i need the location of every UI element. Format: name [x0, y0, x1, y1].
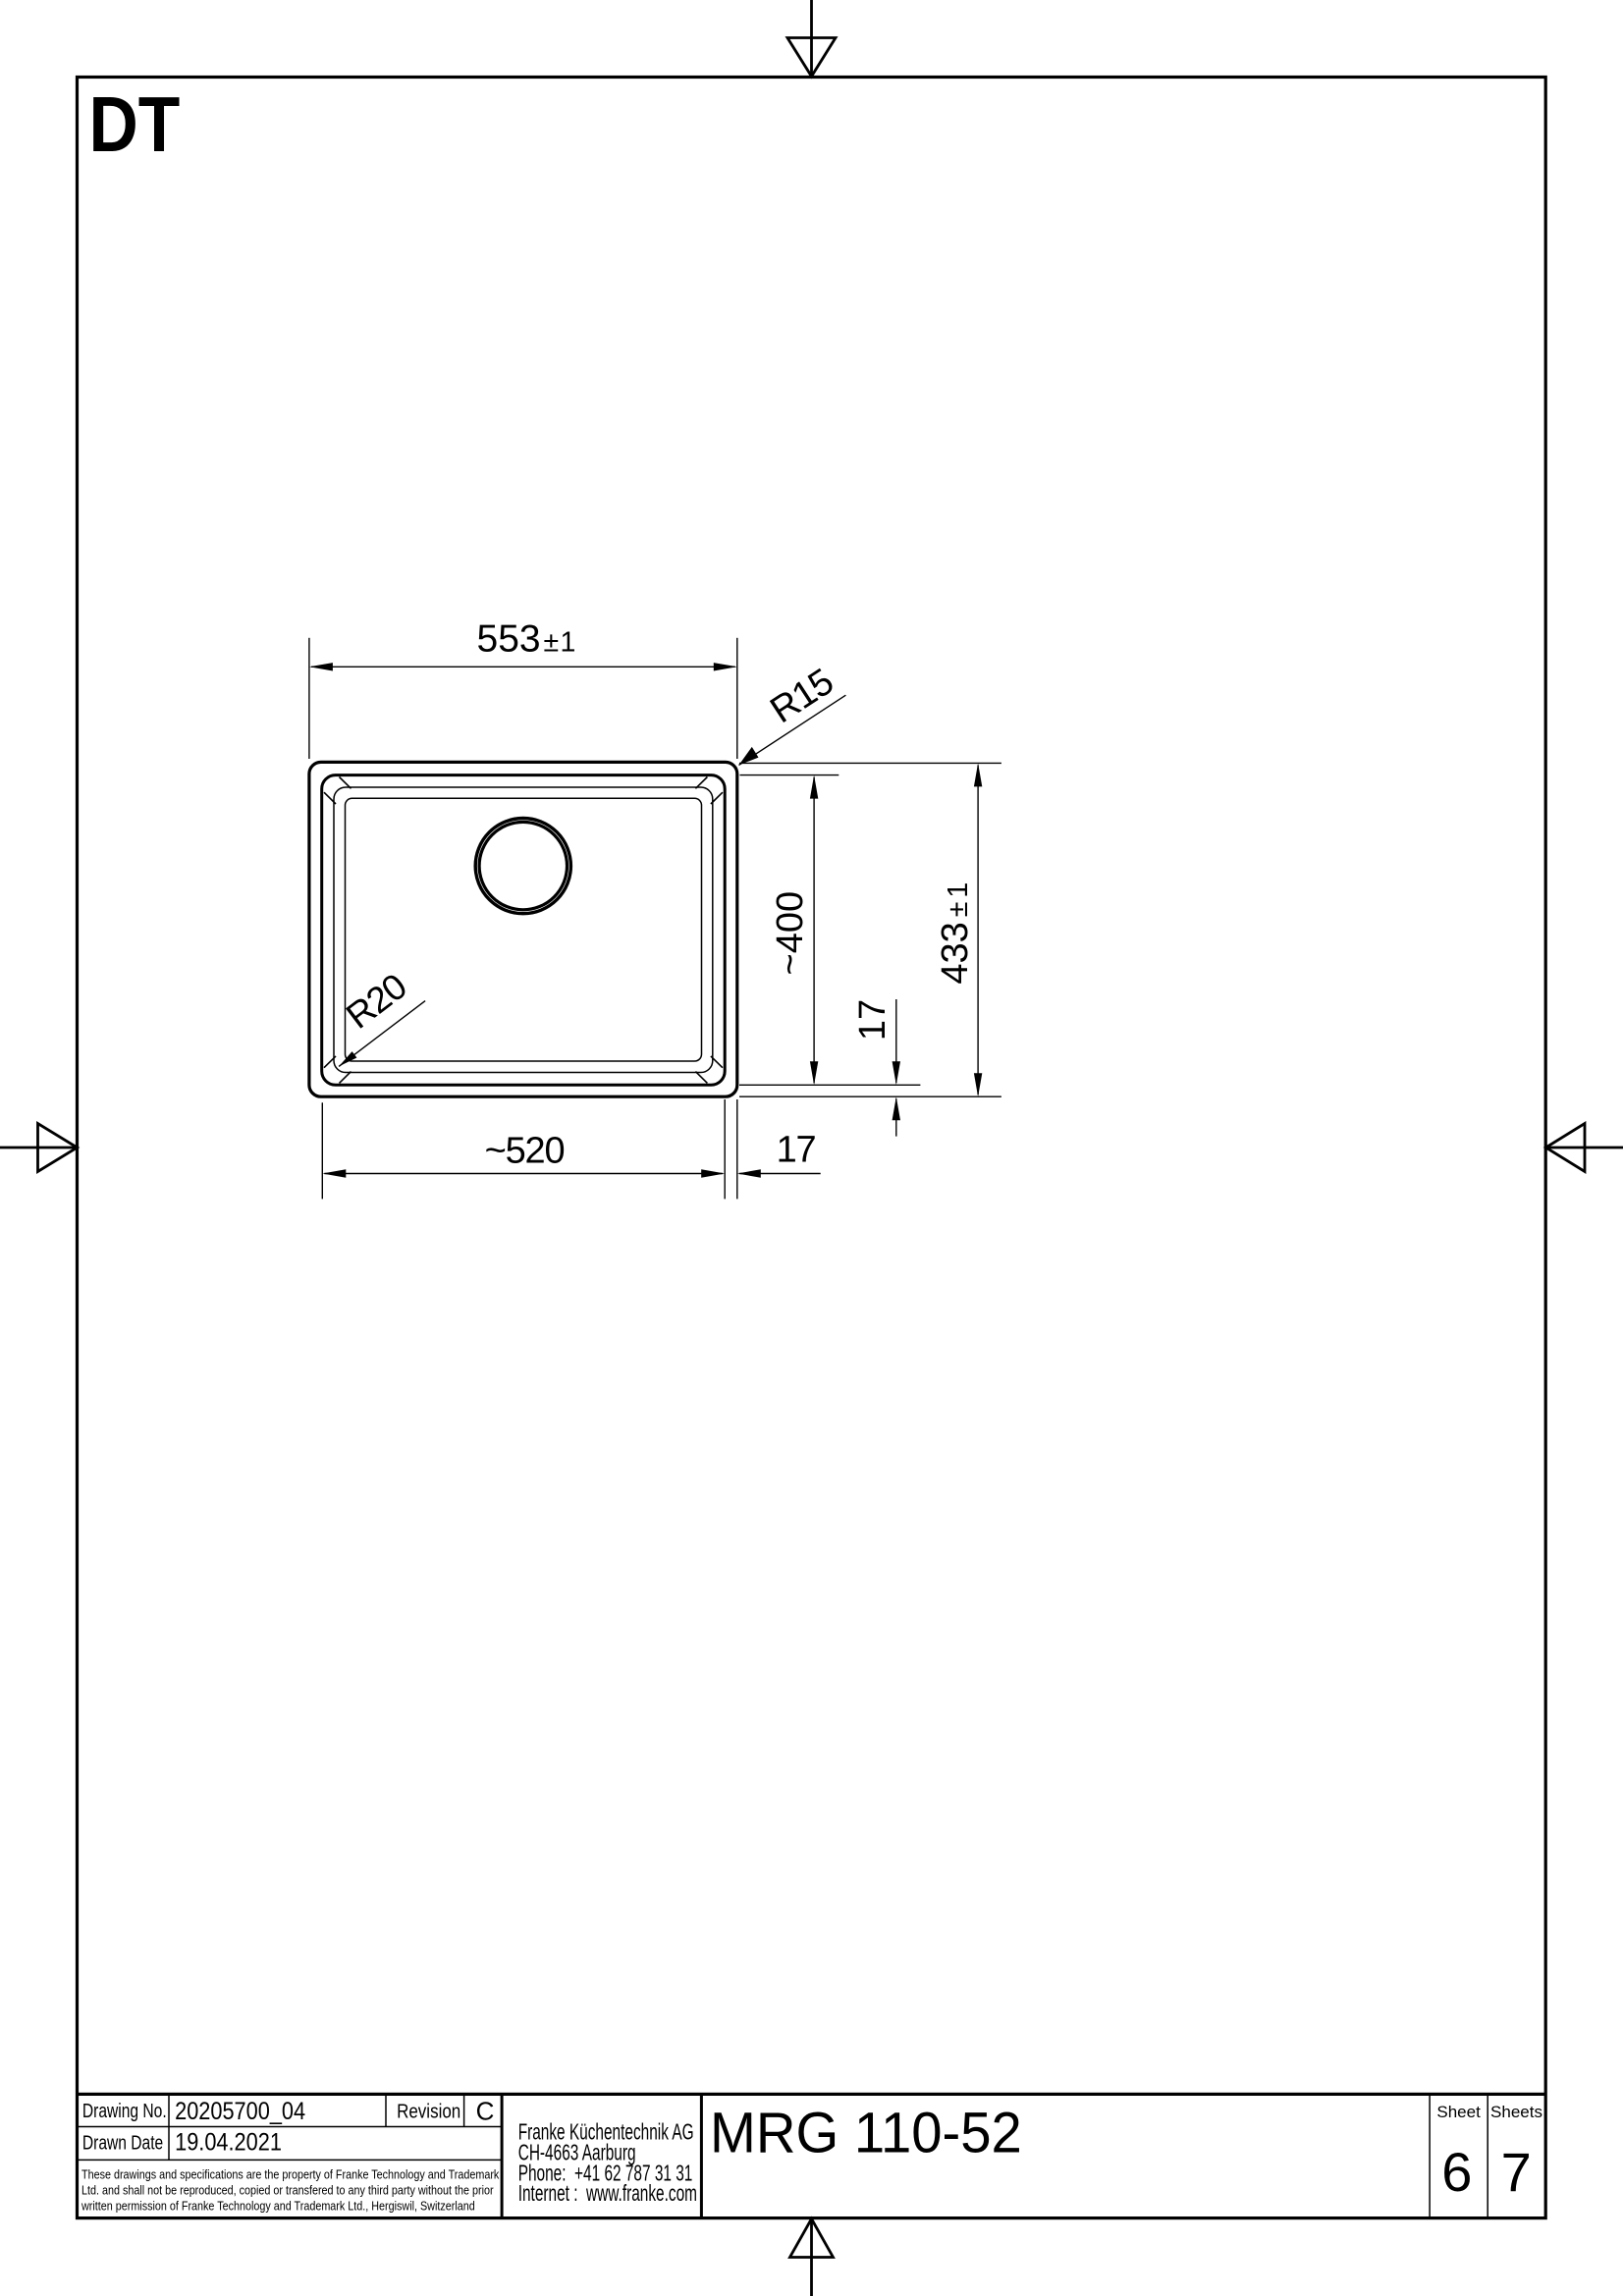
svg-text:17: 17: [852, 999, 893, 1041]
svg-text:These drawings and specificati: These drawings and specifications are th…: [81, 2166, 499, 2181]
svg-text:433±1: 433±1: [935, 882, 976, 985]
svg-text:R20: R20: [339, 966, 413, 1037]
svg-text:MRG 110-52: MRG 110-52: [710, 2102, 1022, 2165]
svg-text:Sheets: Sheets: [1490, 2103, 1542, 2121]
svg-text:1: 1: [561, 626, 576, 658]
svg-text:Drawing No.: Drawing No.: [82, 2100, 167, 2121]
svg-text:7: 7: [1501, 2141, 1532, 2203]
svg-text:R15: R15: [763, 662, 839, 731]
svg-text:~400: ~400: [770, 891, 811, 976]
svg-text:Ltd. and shall not be reproduc: Ltd. and shall not be reproduced, copied…: [81, 2182, 494, 2197]
svg-text:written permission of Franke T: written permission of Franke Technology …: [81, 2198, 475, 2213]
svg-text:19.04.2021: 19.04.2021: [175, 2128, 282, 2156]
svg-text:20205700_04: 20205700_04: [175, 2097, 305, 2124]
svg-text:~520: ~520: [485, 1131, 565, 1172]
svg-text:553: 553: [477, 617, 541, 660]
svg-text:Revision: Revision: [397, 2100, 460, 2122]
svg-text:Internet : www.franke.com: Internet : www.franke.com: [518, 2181, 697, 2207]
svg-text:6: 6: [1441, 2141, 1472, 2203]
svg-text:Sheet: Sheet: [1436, 2103, 1481, 2121]
svg-text:±: ±: [544, 626, 560, 658]
svg-text:DT: DT: [89, 80, 181, 168]
svg-text:C: C: [476, 2097, 495, 2126]
svg-text:Drawn Date: Drawn Date: [82, 2132, 163, 2154]
svg-text:17: 17: [777, 1129, 816, 1170]
